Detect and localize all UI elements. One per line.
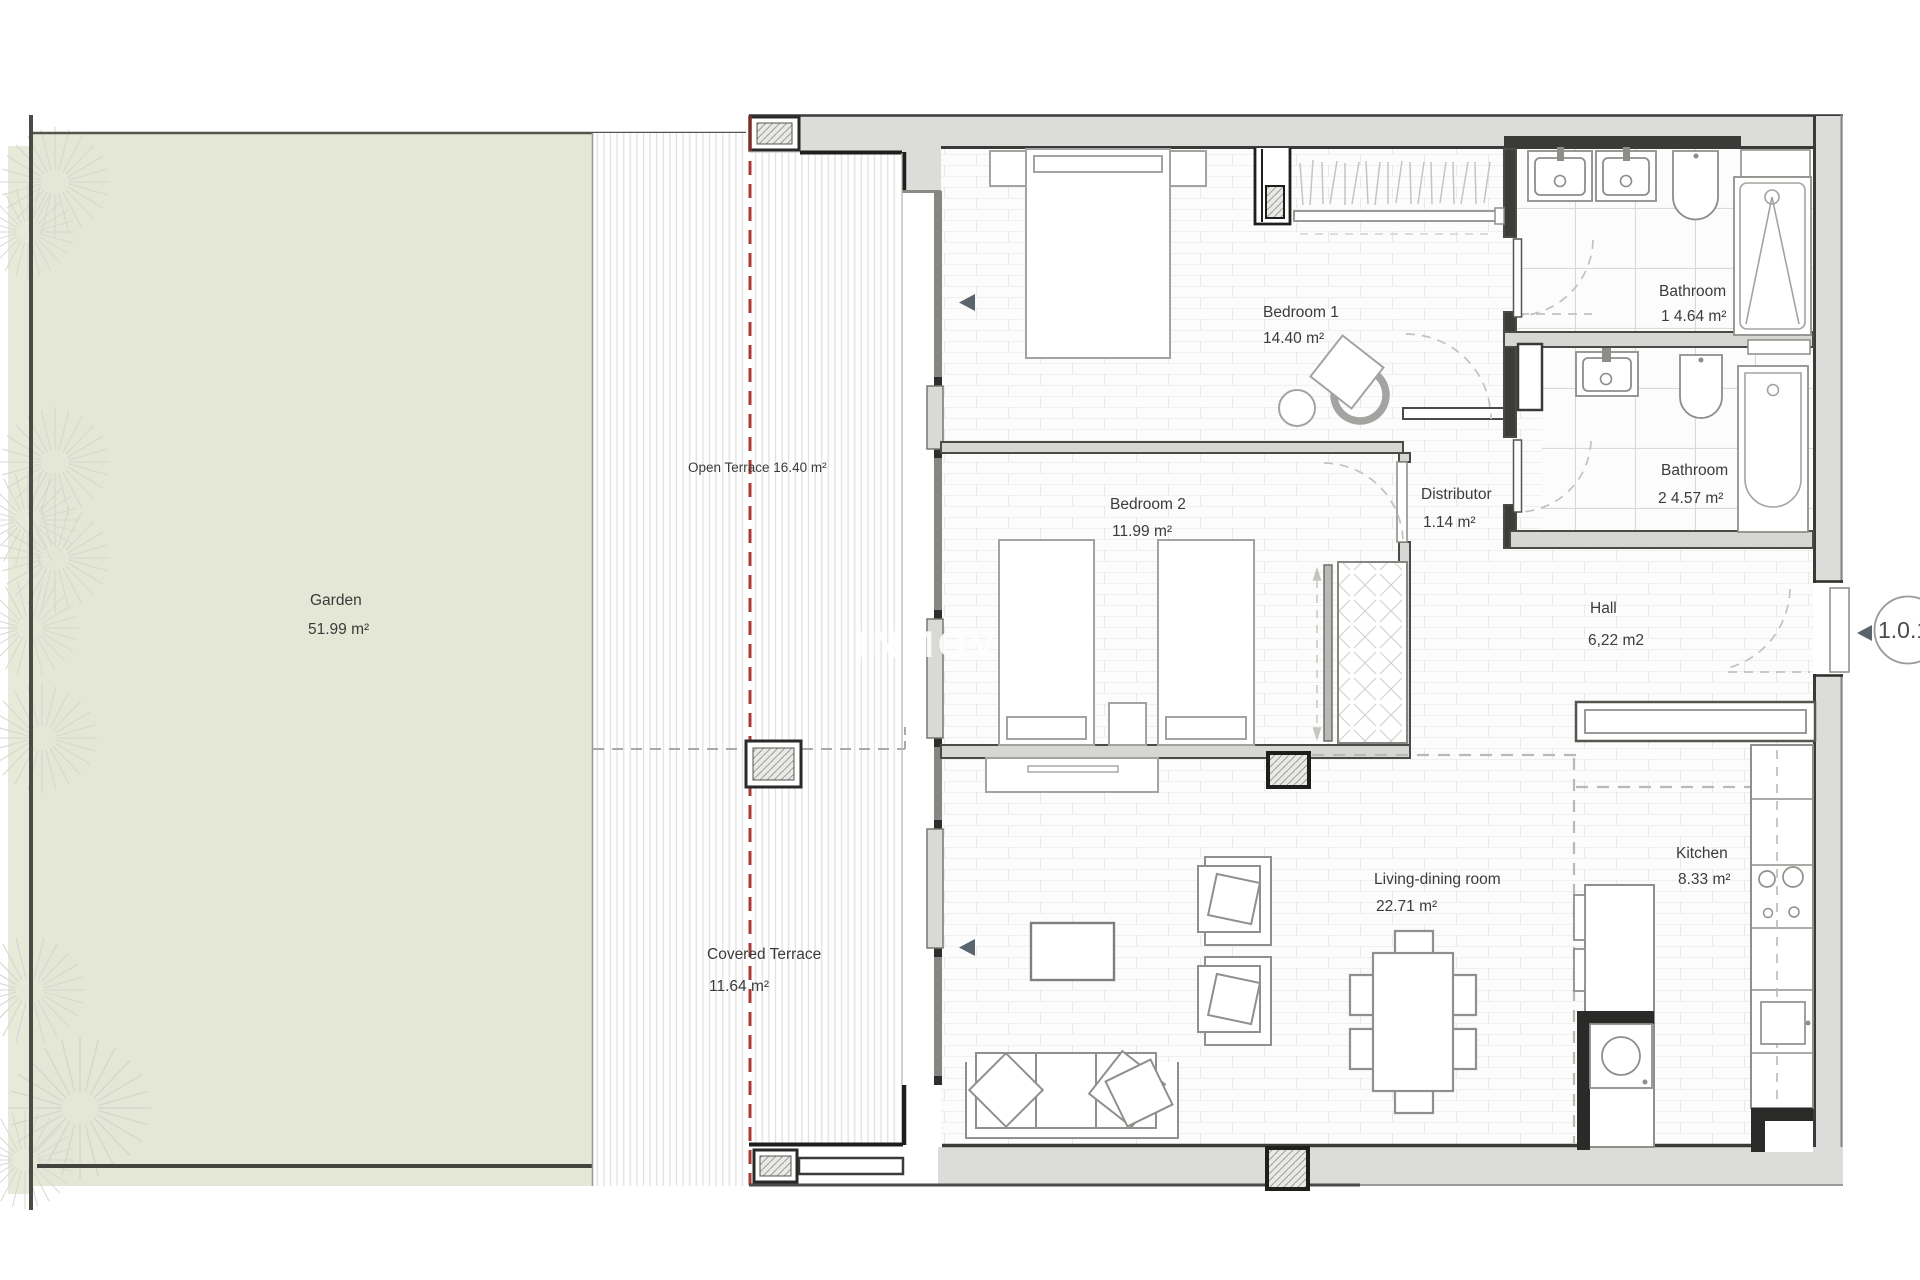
svg-text:Kitchen: Kitchen: [1676, 845, 1728, 862]
svg-text:Garden: Garden: [310, 592, 362, 609]
svg-text:2 4.57 m²: 2 4.57 m²: [1658, 490, 1723, 507]
svg-text:11.64 m²: 11.64 m²: [709, 978, 769, 995]
svg-text:Bedroom 2: Bedroom 2: [1110, 496, 1186, 513]
svg-text:8.33 m²: 8.33 m²: [1678, 871, 1731, 888]
svg-text:Covered Terrace: Covered Terrace: [707, 946, 821, 963]
svg-text:22.71 m²: 22.71 m²: [1376, 898, 1437, 915]
svg-text:INMOVILLA: INMOVILLA: [858, 624, 1097, 665]
svg-text:Bathroom: Bathroom: [1659, 283, 1726, 300]
svg-text:Hall: Hall: [1590, 600, 1617, 617]
svg-text:11.99 m²: 11.99 m²: [1112, 523, 1172, 540]
svg-text:1.14 m²: 1.14 m²: [1423, 514, 1476, 531]
svg-text:1.0.10: 1.0.10: [1878, 617, 1920, 643]
svg-text:6,22 m2: 6,22 m2: [1588, 632, 1644, 649]
svg-text:1 4.64 m²: 1 4.64 m²: [1661, 308, 1726, 325]
svg-text:Distributor: Distributor: [1421, 486, 1492, 503]
svg-text:Bedroom 1: Bedroom 1: [1263, 304, 1339, 321]
svg-text:Bathroom: Bathroom: [1661, 462, 1728, 479]
svg-text:51.99 m²: 51.99 m²: [308, 621, 369, 638]
svg-text:Living-dining room: Living-dining room: [1374, 871, 1501, 888]
svg-text:Open Terrace 16.40 m²: Open Terrace 16.40 m²: [688, 460, 827, 475]
svg-text:14.40 m²: 14.40 m²: [1263, 330, 1324, 347]
